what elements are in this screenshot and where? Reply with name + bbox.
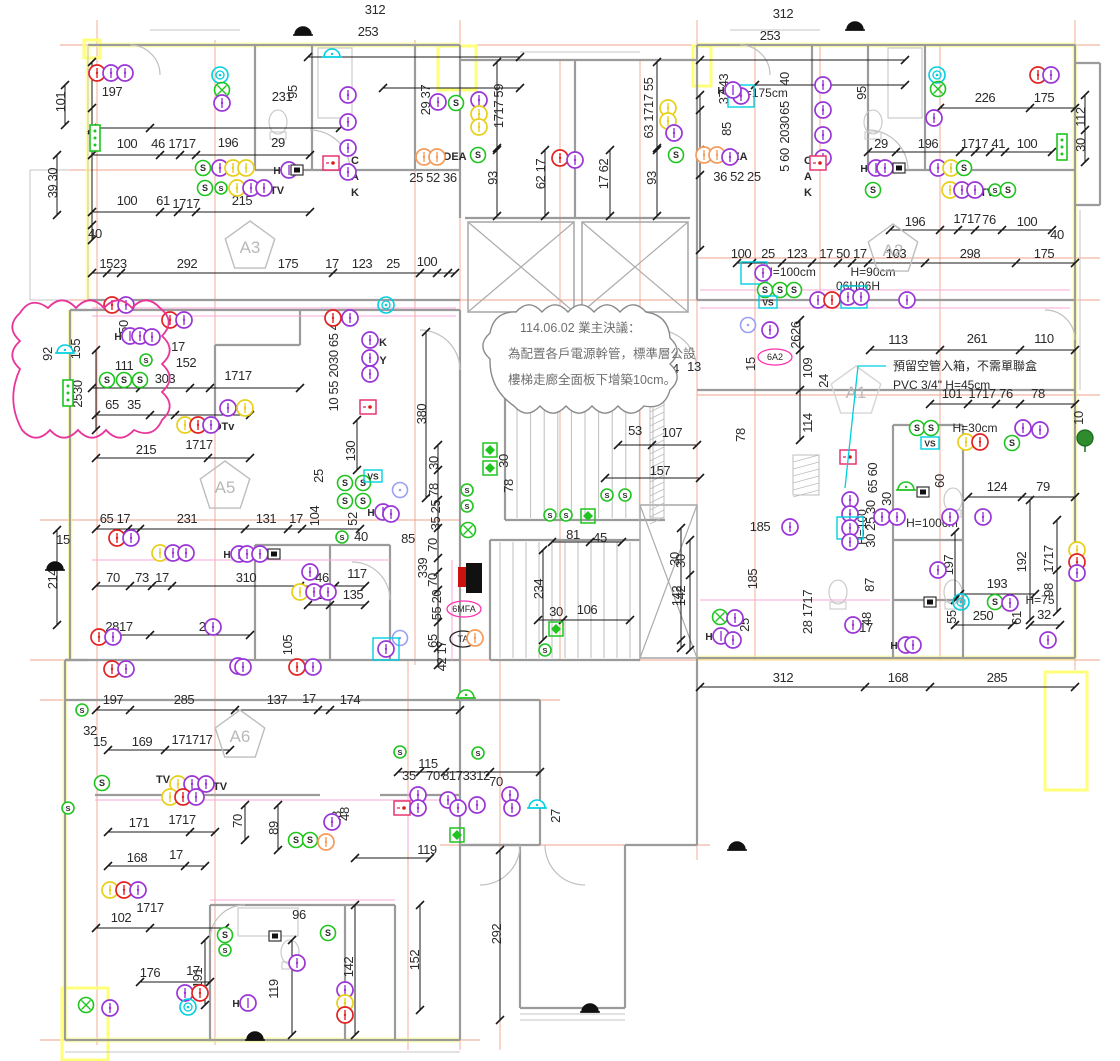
outlet-symbol — [1015, 420, 1031, 436]
outlet-dot — [949, 516, 951, 518]
vs-box-symbol: VS — [921, 437, 939, 449]
dim-label: 2030 — [777, 116, 792, 143]
dim-label: 55 — [944, 610, 959, 624]
outlet-dot — [673, 132, 675, 134]
device-letter-label: TV — [156, 774, 171, 786]
switch-letter: S — [137, 375, 143, 385]
dim-label: 152 — [176, 355, 197, 370]
exit-light-symbol — [549, 622, 563, 636]
dim-label: 119 — [266, 979, 281, 999]
dim-label: 65 — [777, 101, 792, 115]
switch-letter: S — [218, 184, 223, 193]
switch-symbol-small: S — [394, 746, 406, 758]
switch-symbol-small: S — [619, 489, 631, 501]
outlet-dot — [369, 339, 371, 341]
dim-label: 175 — [1034, 246, 1055, 261]
outlet-dot — [437, 101, 439, 103]
switch-symbol: S — [356, 494, 371, 509]
dim-label: 106 — [577, 602, 598, 617]
outlet-symbol — [118, 661, 134, 677]
dim-label: 113 — [888, 332, 908, 347]
switch-symbol: S — [1001, 183, 1016, 198]
conduit-note-line-1: 預留空管入箱，不需單聯盒 — [893, 358, 1037, 373]
switch-symbol: S — [449, 96, 464, 111]
outlet-symbol — [214, 95, 230, 111]
switch-letter: S — [143, 356, 148, 365]
dim-label: 70 — [489, 774, 503, 789]
outlet-dot — [1037, 74, 1039, 76]
dome-light-black — [580, 1004, 600, 1012]
outlet-symbol — [430, 94, 446, 110]
h-letter: H — [232, 999, 239, 1010]
outlet-symbol — [725, 632, 741, 648]
switch-letter: S — [293, 835, 299, 845]
switch-letter: S — [791, 285, 797, 295]
lamp-symbol — [79, 998, 94, 1013]
outlet-dot — [478, 113, 480, 115]
outlet-dot — [199, 992, 201, 994]
outlet-dot — [327, 591, 329, 593]
dim-label: 124 — [987, 479, 1008, 494]
dim-label: 226 — [975, 90, 996, 105]
outlet-dot — [1076, 549, 1078, 551]
dim-label: 79 — [1036, 479, 1050, 494]
hatch-line — [793, 483, 819, 490]
lamp-dot — [399, 489, 402, 492]
outlet-symbol-yellow — [471, 119, 487, 135]
dim-label: 40 — [777, 72, 792, 86]
switch-letter: S — [79, 706, 84, 715]
dim-label: 30 — [549, 604, 563, 619]
hatch-line — [650, 454, 664, 461]
dim-label: 112 — [1073, 107, 1088, 127]
switch-symbol: S — [95, 776, 110, 791]
outlet-dot — [933, 117, 935, 119]
dome-shape — [247, 1032, 263, 1040]
jbox-fill — [927, 600, 933, 605]
dome-light-cyan — [322, 49, 342, 57]
outlet-symbol — [178, 545, 194, 561]
h-letter: H — [890, 641, 897, 652]
switch-symbol-small: S — [539, 644, 551, 656]
dome-shape — [729, 842, 745, 850]
switch-symbol-small: S — [461, 484, 473, 496]
dim-label: 89 — [266, 821, 281, 835]
dim-label: 253 — [358, 24, 379, 39]
outlet-dot — [183, 319, 185, 321]
fire-rect — [360, 400, 376, 414]
outlet-dot — [139, 335, 141, 337]
tub — [238, 908, 298, 936]
switch-symbol-small: S — [461, 500, 473, 512]
dim-label: 61 — [1009, 611, 1024, 625]
outlet-dot — [331, 821, 333, 823]
dim-label: 87 — [862, 578, 877, 592]
outlet-dot — [831, 299, 833, 301]
dim-label: 131 — [256, 511, 277, 526]
outlet-dot — [852, 624, 854, 626]
h-letter: H — [223, 550, 230, 561]
dim-label: 96 — [292, 907, 306, 922]
outlet-symbol — [899, 292, 915, 308]
tub — [888, 48, 922, 118]
outlet-dot — [762, 272, 764, 274]
outlet-symbol — [340, 140, 356, 156]
fire-dot — [368, 405, 372, 409]
switch-symbol: S — [787, 283, 802, 298]
dim-label: 76 — [982, 212, 996, 227]
outlet-dot — [236, 187, 238, 189]
outlet-dot — [210, 424, 212, 426]
dome-shape — [295, 27, 311, 35]
switch-letter: S — [604, 491, 609, 500]
outlet-dot — [246, 553, 248, 555]
fire-device-symbol — [394, 801, 410, 815]
dim-label: 197 — [103, 692, 124, 707]
dim-label: 1717 — [136, 900, 163, 915]
outlet-symbol-red — [337, 1007, 353, 1023]
switch-letter: S — [325, 928, 331, 938]
outlet-dot — [822, 134, 824, 136]
outlet-dot — [559, 157, 561, 159]
switch-symbol: S — [338, 494, 353, 509]
dim-label: 231 — [177, 511, 198, 526]
outlet-dot — [1076, 572, 1078, 574]
unit-label-a5: A5 — [200, 461, 249, 508]
outlet-symbol — [130, 882, 146, 898]
dim-label: 70 — [106, 570, 120, 585]
switch-symbol: S — [289, 833, 304, 848]
junction-box-symbol — [268, 549, 280, 559]
outlet-dot — [109, 1007, 111, 1009]
lamp-symbol — [461, 523, 476, 538]
outlet-dot — [227, 407, 229, 409]
outlet-dot — [332, 317, 334, 319]
outlet-dot — [116, 537, 118, 539]
outlet-dot — [347, 121, 349, 123]
dome-dot — [331, 53, 333, 55]
unit-id: A3 — [240, 238, 261, 257]
outlet-symbol — [1043, 67, 1059, 83]
outlet-dot — [191, 783, 193, 785]
outlet-dot — [1047, 639, 1049, 641]
dim-label: 30 — [496, 454, 511, 468]
exit-diamond — [485, 463, 495, 473]
ceiling-target-symbol — [180, 999, 196, 1015]
floor-plan-page: 3122533122531972319529 37100461717196291… — [0, 0, 1120, 1061]
outlet-dot — [1076, 561, 1078, 563]
dim-label: 70 — [425, 573, 440, 587]
outlet-symbol — [289, 955, 305, 971]
switch-letter: S — [961, 163, 967, 173]
outlet-symbol — [123, 530, 139, 546]
revision-cloud-left — [12, 300, 169, 437]
outlet-dot — [111, 304, 113, 306]
dome-light-black — [727, 842, 747, 850]
switch-letter: S — [622, 491, 627, 500]
outlet-symbol — [845, 617, 861, 633]
dim-label: 171 — [129, 815, 150, 830]
outlet-dot — [906, 299, 908, 301]
outlet-dot — [849, 499, 851, 501]
outlet-dot — [296, 962, 298, 964]
outlet-symbol — [504, 800, 520, 816]
outlet-dot — [172, 552, 174, 554]
switch-symbol: S — [303, 833, 318, 848]
outlet-symbol — [762, 322, 778, 338]
dim-label: 93 — [644, 171, 659, 185]
outlet-symbol — [815, 102, 831, 118]
device-letter-label: Y — [379, 355, 387, 367]
hatch-line — [650, 510, 664, 517]
outlet-symbol-red — [325, 310, 341, 326]
switch-symbol-small: S — [76, 704, 88, 716]
switch-symbol: S — [100, 373, 115, 388]
switch-symbol: S — [758, 283, 773, 298]
switch-letter: S — [475, 749, 480, 758]
lamp-symbol — [713, 610, 728, 625]
outlet-symbol — [362, 366, 378, 382]
outlet-symbol-red — [972, 434, 988, 450]
dim-label: 380 — [414, 404, 429, 425]
switch-symbol: S — [338, 476, 353, 491]
toilet — [269, 110, 287, 134]
outlet-symbol-red — [824, 292, 840, 308]
panel-dot — [1061, 139, 1064, 142]
outlet-dot — [961, 189, 963, 191]
switch-letter: S — [453, 98, 459, 108]
switch-letter: S — [342, 496, 348, 506]
outlet-symbol — [256, 180, 272, 196]
dim-label: 25 52 36 — [409, 170, 457, 185]
outlet-dot — [860, 296, 862, 298]
dim-label: 46 — [151, 136, 165, 151]
outlet-symbol — [926, 110, 942, 126]
outlet-symbol — [378, 641, 394, 657]
dim-label: 53 — [628, 423, 642, 438]
target-dot — [960, 601, 963, 604]
dim-label: 30 — [426, 456, 441, 470]
panel-dot — [67, 392, 70, 395]
outlet-symbol-orange — [318, 834, 334, 850]
lamp-dot — [747, 324, 750, 327]
column-highlight — [62, 988, 108, 1060]
dim-label: 17 50 17 — [819, 246, 867, 261]
dim-label: 285 — [174, 692, 195, 707]
outlet-symbol — [727, 610, 743, 626]
switch-letter: S — [563, 511, 568, 520]
dim-label: 100 — [731, 246, 752, 261]
switch-symbol: S — [773, 283, 788, 298]
dim-label: 17 — [169, 847, 183, 862]
column-highlight — [438, 46, 476, 90]
dim-label: 298 — [960, 246, 981, 261]
junction-box-symbol — [917, 487, 929, 497]
outlet-dot — [457, 807, 459, 809]
conduit-note-line-2: PVC 3/4" H=45cm — [893, 378, 990, 392]
device-letter-label: K — [351, 187, 359, 199]
dim-label: 152 — [407, 950, 422, 971]
target-dot — [219, 74, 222, 77]
outlet-dot — [703, 154, 705, 156]
outlet-symbol-orange — [467, 630, 483, 646]
dim-label: 193 — [987, 576, 1008, 591]
outlet-dot — [789, 526, 791, 528]
outlet-symbol — [118, 297, 134, 313]
outlet-symbol — [117, 65, 133, 81]
outlet-dot — [309, 571, 311, 573]
outlet-dot — [259, 553, 261, 555]
outlet-dot — [151, 336, 153, 338]
switch-symbol-small: S — [219, 944, 231, 956]
dim-label: 70 — [426, 768, 440, 783]
device-letter-label: A — [804, 171, 812, 183]
junction-box-symbol — [269, 931, 281, 941]
jbox-fill — [271, 552, 277, 557]
fire-dot — [402, 806, 406, 810]
outlet-symbol — [176, 312, 192, 328]
dim-label: 30 — [667, 552, 682, 566]
outlet-symbol — [1002, 595, 1018, 611]
hatch-line — [793, 462, 819, 469]
device-letter-label: K — [804, 187, 812, 199]
dim-label: 214 — [45, 569, 60, 590]
dim-label: 29 — [271, 135, 285, 150]
switch-letter: S — [475, 150, 481, 160]
outlet-symbol — [220, 400, 236, 416]
jbox-fill — [294, 168, 300, 173]
hatch-line — [793, 455, 819, 462]
height-annotation: H=100cm — [764, 265, 816, 279]
outlet-symbol-yellow — [238, 160, 254, 176]
outlet-symbol — [105, 629, 121, 645]
lamp-symbol-blue — [393, 483, 408, 498]
fire-rect — [810, 156, 826, 170]
outlet-symbol — [362, 350, 378, 366]
switch-letter: S — [870, 185, 876, 195]
outlet-dot — [221, 102, 223, 104]
panel-dot — [67, 399, 70, 402]
outlet-dot — [111, 668, 113, 670]
dim-label: 171717 — [172, 732, 213, 747]
fire-rect — [394, 801, 410, 815]
h-letter: H — [860, 164, 867, 175]
dim-label: 100 — [117, 193, 138, 208]
dim-label: 130 — [343, 441, 358, 462]
outlet-symbol — [967, 182, 983, 198]
outlet-dot — [250, 187, 252, 189]
dim-label: 35 — [127, 397, 141, 412]
outlet-symbol — [905, 637, 921, 653]
switch-letter: S — [99, 778, 105, 788]
outlet-dot — [1009, 602, 1011, 604]
h-letter: H — [717, 86, 724, 97]
outlet-dot — [349, 317, 351, 319]
column-highlight — [693, 46, 711, 86]
outlet-symbol — [1040, 632, 1056, 648]
dim-label: 15 — [56, 532, 70, 547]
outlet-dot — [242, 666, 244, 668]
device-letter-label: DEA — [443, 151, 466, 163]
h-letter: H — [367, 508, 374, 519]
dim-label: 135 — [343, 587, 364, 602]
dim-label: 119 — [417, 842, 437, 857]
target-dot — [187, 1006, 190, 1009]
panel-symbol — [90, 125, 100, 151]
dim-label: 35 — [402, 768, 416, 783]
dim-label: 65 17 — [100, 511, 131, 526]
outlet-dot — [184, 992, 186, 994]
door-swing — [130, 45, 160, 75]
hatch-line — [650, 489, 664, 496]
dim-label: 15 — [93, 734, 107, 749]
outlet-symbol-orange — [429, 149, 445, 165]
outlet-dot — [299, 591, 301, 593]
dome-light-black — [45, 562, 65, 570]
dim-label: 175 — [278, 256, 299, 271]
outlet-dot — [344, 1014, 346, 1016]
dim-label: 250 — [973, 608, 994, 623]
dim-label: 114 — [800, 413, 815, 433]
dim-label: 25 — [761, 246, 775, 261]
outlet-dot — [417, 794, 419, 796]
switch-letter: S — [992, 597, 998, 607]
outlet-dot — [896, 516, 898, 518]
outlet-dot — [1039, 429, 1041, 431]
dome-dot — [465, 694, 467, 696]
switch-symbol-small: S — [601, 489, 613, 501]
dim-label: 17 62 — [596, 159, 611, 190]
outlet-dot — [177, 783, 179, 785]
dim-label: 32 — [1037, 607, 1051, 622]
outlet-dot — [347, 171, 349, 173]
dim-label: 10 55 2030 65 40 — [326, 316, 341, 411]
dim-label: 8173312 — [442, 768, 490, 783]
outlet-dot — [436, 156, 438, 158]
outlet-dot — [219, 167, 221, 169]
outlet-dot — [130, 537, 132, 539]
hatch-line — [650, 503, 664, 510]
switch-symbol: S — [988, 595, 1003, 610]
outlet-symbol — [782, 519, 798, 535]
fire-dot — [331, 161, 335, 165]
outlet-symbol — [410, 800, 426, 816]
dim-label: 78 — [1031, 386, 1045, 401]
outlet-symbol — [975, 509, 991, 525]
dim-label: 1717 41 — [961, 136, 1005, 151]
dim-label: 24 — [816, 374, 831, 388]
switch-symbol-small: S — [62, 802, 74, 814]
tree-crown — [1077, 430, 1093, 446]
mfa-text: 6MFA — [452, 604, 476, 614]
hatch-line — [793, 476, 819, 483]
outlet-dot — [847, 296, 849, 298]
dim-label: 168 — [127, 850, 148, 865]
outlet-dot — [347, 147, 349, 149]
switch-symbol-small: S — [336, 531, 348, 543]
outlet-dot — [263, 187, 265, 189]
panel-symbol — [63, 380, 73, 406]
panel-board — [458, 567, 466, 587]
dim-label: 100 — [417, 254, 438, 269]
dim-label: 142 — [341, 957, 356, 978]
dim-label: 76 — [999, 386, 1013, 401]
outlet-dot — [729, 156, 731, 158]
switch-letter: S — [121, 375, 127, 385]
switch-symbol: S — [218, 928, 233, 943]
cloud-note-line-2: 為配置各戶電源幹管，標準層公設 — [508, 346, 696, 361]
dim-label: 95 — [854, 86, 869, 100]
